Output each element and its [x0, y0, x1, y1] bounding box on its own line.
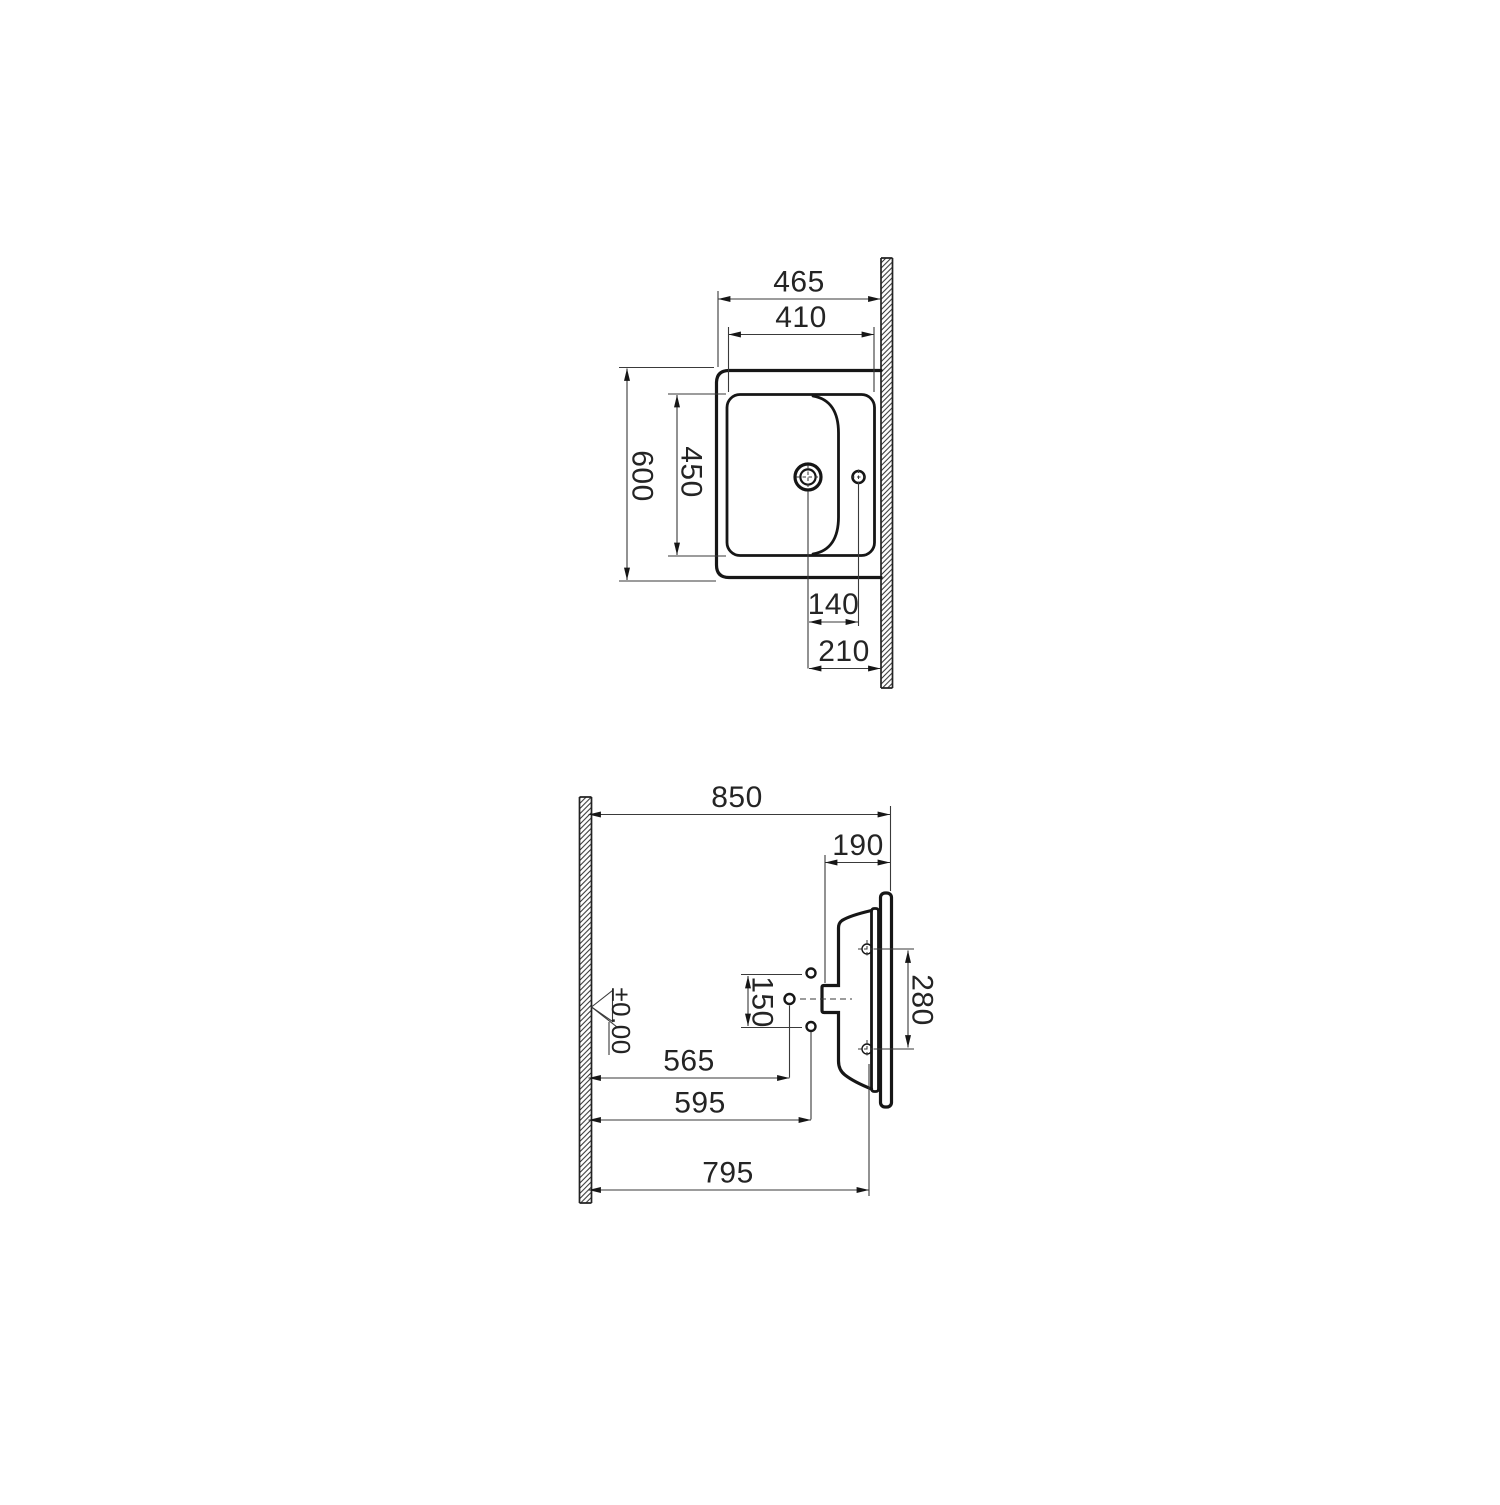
dim-basin-back-distance: 795: [589, 1157, 870, 1191]
wall-hatch-plan: [881, 258, 893, 688]
dim-label: 850: [711, 781, 763, 814]
dim-label: 210: [818, 635, 870, 668]
wall-hatch-elevation: [580, 797, 592, 1203]
basin-body-profile: [822, 911, 872, 1090]
dim-tap-to-drain: 140: [808, 588, 860, 622]
drawing-sheet: 465 410 600 450 140 210: [0, 0, 1500, 1500]
dim-fixing-hole-spacing: 280: [874, 949, 939, 1049]
basin-back-edge: [872, 909, 879, 1092]
dim-label: 280: [906, 974, 939, 1026]
fixing-hole-bottom-icon: [858, 1040, 876, 1058]
basin-technical-drawing: 465 410 600 450 140 210: [0, 0, 1500, 1500]
dim-label: 595: [674, 1087, 726, 1120]
tap-hole-icon: [851, 470, 866, 485]
dim-label: 565: [663, 1045, 715, 1078]
bowl-edge-curve: [813, 396, 839, 554]
basin-rim-bar: [881, 893, 892, 1107]
dim-label: 150: [746, 976, 779, 1028]
dim-label: 190: [832, 829, 884, 862]
drain-outlet-icon: [795, 464, 821, 490]
dim-label: 140: [808, 588, 860, 621]
drain-hole-icon: [785, 994, 795, 1004]
dim-recess-width: 410: [729, 301, 875, 392]
supply-hole-top-icon: [807, 969, 816, 978]
plan-view: 465 410 600 450 140 210: [619, 258, 893, 688]
dim-label: 600: [626, 450, 659, 502]
dim-label: 450: [675, 446, 708, 498]
dim-label: 795: [702, 1157, 754, 1190]
elevation-view: ±0.00 850 190: [580, 781, 939, 1203]
dim-supply-distance: 595: [589, 1087, 812, 1121]
dim-label: 410: [775, 301, 827, 334]
basin-outline-plan: [717, 371, 882, 578]
datum-label: ±0.00: [606, 987, 636, 1054]
datum-level-symbol: ±0.00: [592, 987, 637, 1055]
dim-label: 465: [773, 266, 825, 299]
dim-drain-to-wall: 210: [809, 635, 881, 669]
fixing-hole-top-icon: [858, 940, 876, 958]
supply-hole-bottom-icon: [807, 1022, 816, 1031]
